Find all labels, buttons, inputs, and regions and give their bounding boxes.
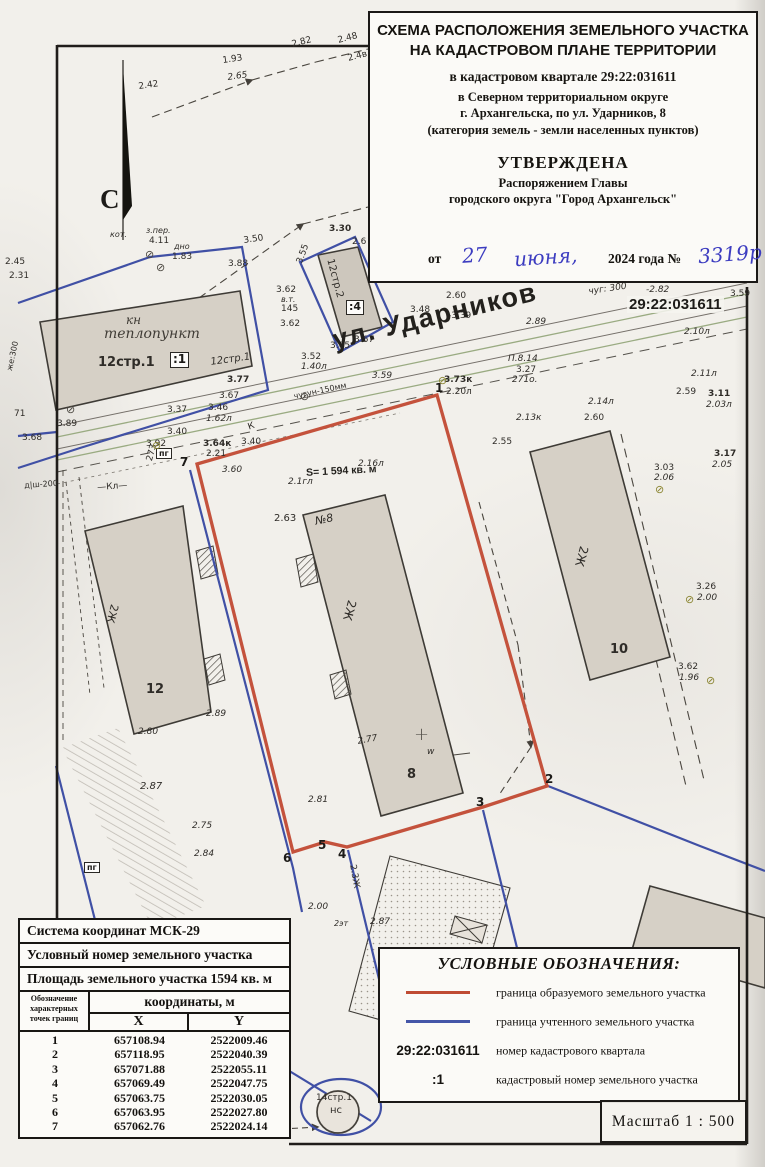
road-hatch-band bbox=[62, 728, 206, 927]
approved-by-line2: городского округа "Город Архангельск" bbox=[376, 191, 750, 207]
coordinates-table: Система координат МСК-29 Условный номер … bbox=[18, 918, 291, 1139]
building-8 bbox=[303, 495, 463, 816]
legend-symbol-text: 29:22:031611 bbox=[396, 1043, 479, 1058]
x-coordinate-cell: 657118.95 bbox=[90, 1047, 189, 1061]
pump-station-circle bbox=[317, 1091, 359, 1133]
handwritten-month: июня, bbox=[513, 243, 578, 271]
coordinate-system-row: Система координат МСК-29 bbox=[20, 920, 289, 944]
legend-item: :1кадастровый номер земельного участка bbox=[380, 1065, 738, 1094]
legend-item: 29:22:031611номер кадастрового квартала bbox=[380, 1036, 738, 1065]
y-coordinate-cell: 2522047.75 bbox=[189, 1076, 289, 1090]
legend-symbol-text: :1 bbox=[432, 1072, 444, 1087]
point-number-cell: 3 bbox=[20, 1062, 90, 1076]
cadastral-quarter-label: 29:22:031611 bbox=[627, 296, 724, 313]
x-coordinate-cell: 657069.49 bbox=[90, 1076, 189, 1090]
subtitle-district: в Северном территориальном округе bbox=[376, 89, 750, 105]
x-coordinate-cell: 657108.94 bbox=[90, 1033, 189, 1047]
x-coordinate-cell: 657062.76 bbox=[90, 1119, 189, 1133]
y-column-header: Y bbox=[189, 1014, 289, 1030]
legend-line-sample bbox=[388, 1007, 488, 1036]
approved-by-line1: Распоряжением Главы bbox=[376, 175, 750, 191]
title-line2: НА КАДАСТРОВОМ ПЛАНЕ ТЕРРИТОРИИ bbox=[410, 42, 717, 59]
x-column-header: X bbox=[90, 1014, 189, 1030]
scanned-cadastral-scheme-page: { "colors": {"boundary_red":"#c4523c","p… bbox=[0, 0, 765, 1167]
point-number-cell: 6 bbox=[20, 1105, 90, 1119]
legend-item-label: граница учтенного земельного участка bbox=[496, 1014, 694, 1029]
point-number-cell: 4 bbox=[20, 1076, 90, 1090]
date-suffix: 2024 года № bbox=[608, 251, 681, 267]
coords-column-group: координаты, м X Y bbox=[90, 992, 289, 1030]
title-line1: СХЕМА РАСПОЛОЖЕНИЯ ЗЕМЕЛЬНОГО УЧАСТКА bbox=[377, 22, 749, 39]
x-coordinate-cell: 657071.88 bbox=[90, 1062, 189, 1076]
subtitle-address: г. Архангельска, по ул. Ударников, 8 bbox=[376, 105, 750, 121]
x-coordinate-cell: 657063.95 bbox=[90, 1105, 189, 1119]
subtitle-category: (категория земель - земли населенных пун… bbox=[376, 122, 750, 138]
table-header: Обозначение характерных точек границ коо… bbox=[20, 992, 289, 1032]
building-10 bbox=[530, 431, 670, 680]
plot-area-row: Площадь земельного участка 1594 кв. м bbox=[20, 968, 289, 992]
y-coordinate-cell: 2522024.14 bbox=[189, 1119, 289, 1133]
legend: УСЛОВНЫЕ ОБОЗНАЧЕНИЯ: граница образуемог… bbox=[378, 947, 740, 1103]
legend-item-label: номер кадастрового квартала bbox=[496, 1043, 645, 1058]
legend-code-sample: 29:22:031611 bbox=[388, 1036, 488, 1065]
approved-stamp-title: УТВЕРЖДЕНА bbox=[376, 153, 750, 173]
approval-date-row: от 27 июня, 2024 года № 3319р bbox=[376, 245, 750, 271]
legend-rows: граница образуемого земельного участкагр… bbox=[380, 978, 738, 1094]
table-row: 4657069.492522047.75 bbox=[20, 1076, 289, 1090]
coords-header: координаты, м bbox=[90, 992, 289, 1014]
scale-label: Масштаб 1 : 500 bbox=[612, 1113, 735, 1131]
north-arrow bbox=[123, 60, 132, 240]
date-prefix: от bbox=[428, 251, 441, 267]
y-coordinate-cell: 2522055.11 bbox=[189, 1062, 289, 1076]
table-row: 7657062.762522024.14 bbox=[20, 1119, 289, 1133]
conditional-number-row: Условный номер земельного участка bbox=[20, 944, 289, 968]
legend-item-label: граница образуемого земельного участка bbox=[496, 985, 706, 1000]
table-body: 1657108.942522009.462657118.952522040.39… bbox=[20, 1032, 289, 1137]
point-number-cell: 7 bbox=[20, 1119, 90, 1133]
table-row: 3657071.882522055.11 bbox=[20, 1062, 289, 1076]
handwritten-number: 3319р bbox=[697, 240, 762, 268]
x-coordinate-cell: 657063.75 bbox=[90, 1091, 189, 1105]
title-block: СХЕМА РАСПОЛОЖЕНИЯ ЗЕМЕЛЬНОГО УЧАСТКА НА… bbox=[368, 11, 758, 283]
scale-box: Масштаб 1 : 500 bbox=[600, 1100, 747, 1143]
boundary-line-icon bbox=[406, 1020, 470, 1023]
table-row: 6657063.952522027.80 bbox=[20, 1105, 289, 1119]
y-coordinate-cell: 2522040.39 bbox=[189, 1047, 289, 1061]
legend-item: граница образуемого земельного участка bbox=[380, 978, 738, 1007]
subtitle-quarter: в кадастровом квартале 29:22:031611 bbox=[376, 69, 750, 85]
y-coordinate-cell: 2522027.80 bbox=[189, 1105, 289, 1119]
table-row: 1657108.942522009.46 bbox=[20, 1033, 289, 1047]
legend-item-label: кадастровый номер земельного участка bbox=[496, 1072, 698, 1087]
point-number-cell: 2 bbox=[20, 1047, 90, 1061]
legend-item: граница учтенного земельного участка bbox=[380, 1007, 738, 1036]
table-row: 2657118.952522040.39 bbox=[20, 1047, 289, 1061]
points-column-header: Обозначение характерных точек границ bbox=[20, 992, 90, 1030]
building-12 bbox=[85, 506, 211, 734]
legend-code-sample: :1 bbox=[388, 1065, 488, 1094]
document-title: СХЕМА РАСПОЛОЖЕНИЯ ЗЕМЕЛЬНОГО УЧАСТКА НА… bbox=[376, 21, 750, 60]
handwritten-day: 27 bbox=[461, 242, 488, 268]
point-number-cell: 5 bbox=[20, 1091, 90, 1105]
point-number-cell: 1 bbox=[20, 1033, 90, 1047]
table-row: 5657063.752522030.05 bbox=[20, 1091, 289, 1105]
y-coordinate-cell: 2522009.46 bbox=[189, 1033, 289, 1047]
legend-title: УСЛОВНЫЕ ОБОЗНАЧЕНИЯ: bbox=[380, 954, 738, 974]
boundary-line-icon bbox=[406, 991, 470, 994]
north-label: С bbox=[100, 184, 120, 215]
legend-line-sample bbox=[388, 978, 488, 1007]
y-coordinate-cell: 2522030.05 bbox=[189, 1091, 289, 1105]
